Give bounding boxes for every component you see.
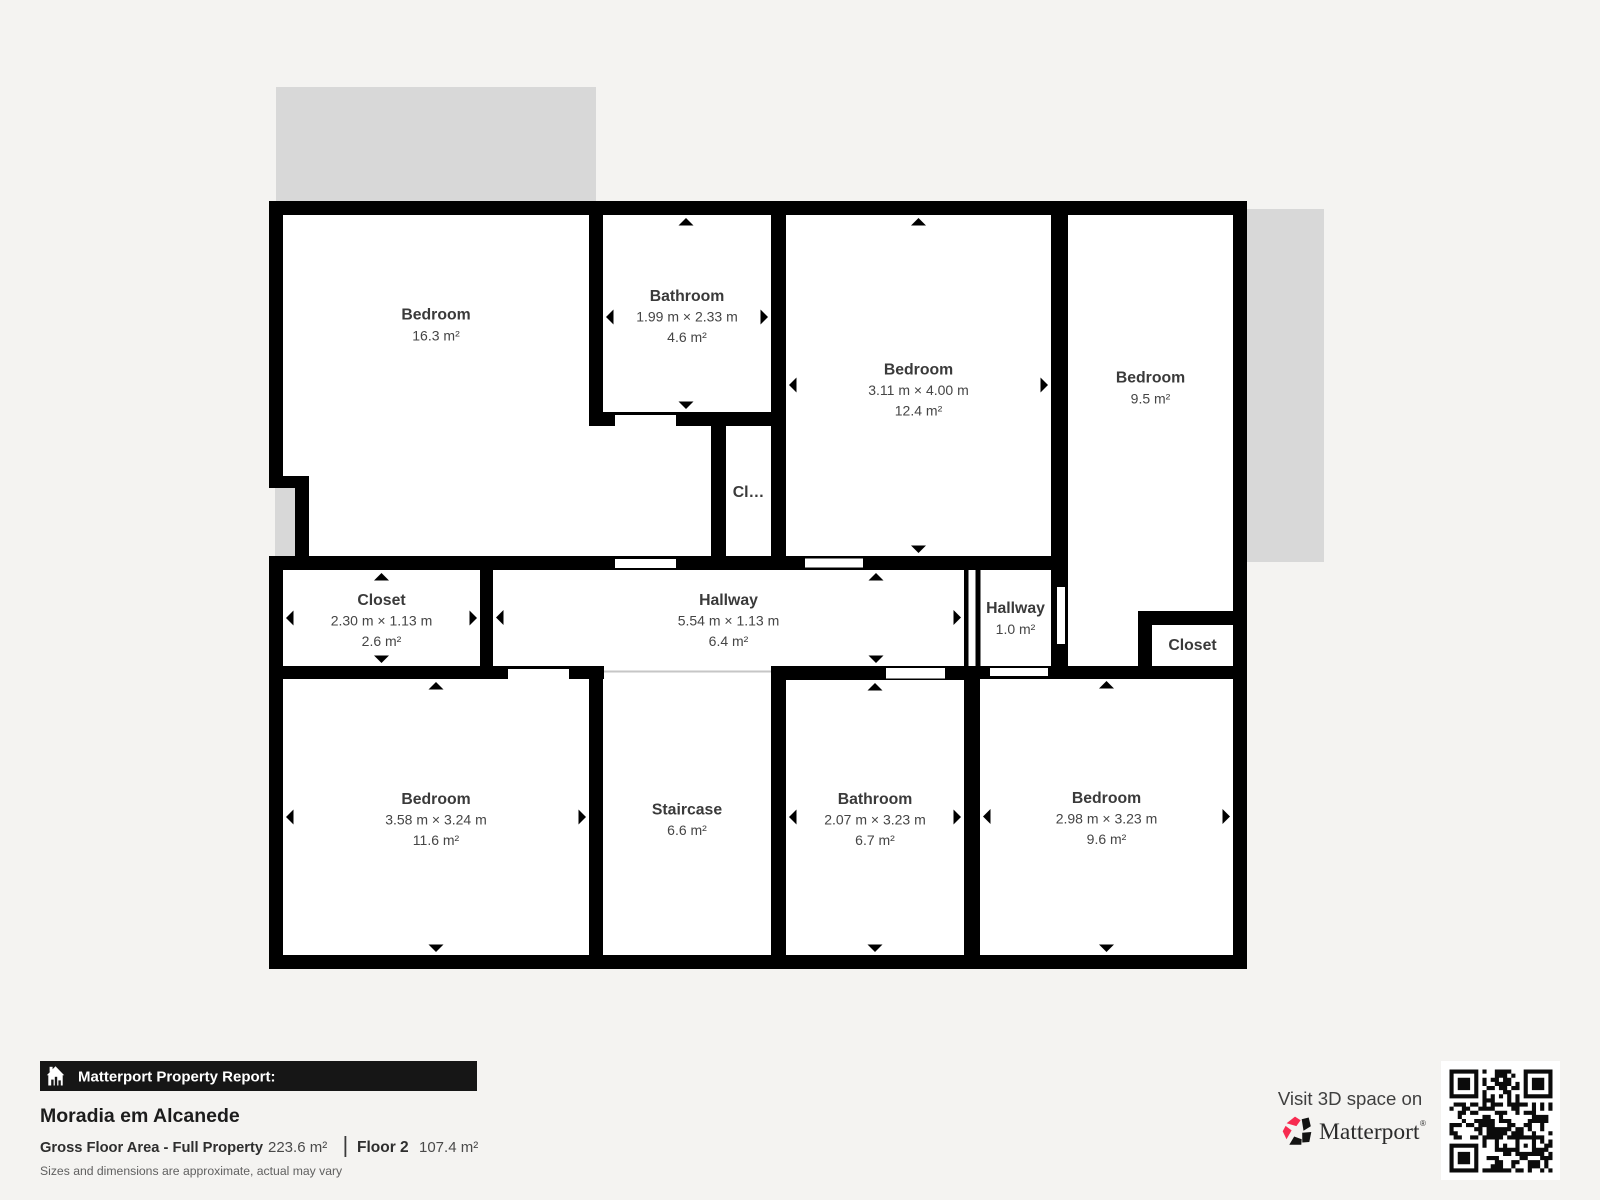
svg-text:Bedroom: Bedroom — [1072, 790, 1141, 807]
svg-text:Gross Floor Area - Full Proper: Gross Floor Area - Full Property — [40, 1140, 264, 1156]
svg-text:1.0 m²: 1.0 m² — [996, 621, 1036, 637]
svg-text:Closet: Closet — [1168, 637, 1217, 654]
svg-text:®: ® — [1420, 1119, 1426, 1128]
svg-text:Closet: Closet — [357, 592, 406, 609]
svg-text:Bedroom: Bedroom — [884, 362, 953, 379]
svg-text:Visit 3D space on: Visit 3D space on — [1278, 1088, 1422, 1109]
svg-text:6.6 m²: 6.6 m² — [667, 822, 707, 838]
svg-text:Hallway: Hallway — [986, 600, 1045, 617]
svg-text:Bathroom: Bathroom — [838, 791, 913, 808]
svg-text:9.5 m²: 9.5 m² — [1131, 391, 1171, 407]
svg-text:Bedroom: Bedroom — [401, 791, 470, 808]
svg-text:Bedroom: Bedroom — [401, 307, 470, 324]
svg-text:Moradia em Alcanede: Moradia em Alcanede — [40, 1105, 240, 1127]
svg-text:12.4 m²: 12.4 m² — [895, 403, 943, 419]
svg-text:Matterport: Matterport — [1319, 1119, 1420, 1145]
svg-text:Bathroom: Bathroom — [650, 288, 725, 305]
svg-text:223.6 m²: 223.6 m² — [268, 1139, 327, 1156]
svg-text:5.54 m × 1.13 m: 5.54 m × 1.13 m — [678, 613, 780, 629]
svg-text:4.6 m²: 4.6 m² — [667, 329, 707, 345]
svg-text:11.6 m²: 11.6 m² — [413, 832, 460, 848]
svg-text:1.99 m × 2.33 m: 1.99 m × 2.33 m — [636, 309, 738, 325]
svg-text:2.30 m × 1.13 m: 2.30 m × 1.13 m — [331, 613, 433, 629]
svg-text:Sizes and dimensions are appro: Sizes and dimensions are approximate, ac… — [40, 1164, 343, 1178]
svg-text:Cl…: Cl… — [733, 484, 765, 501]
svg-text:16.3 m²: 16.3 m² — [412, 328, 460, 344]
svg-text:Matterport Property Report:: Matterport Property Report: — [78, 1069, 276, 1086]
svg-text:Hallway: Hallway — [699, 592, 758, 609]
svg-text:2.6 m²: 2.6 m² — [362, 633, 402, 649]
svg-text:2.07 m × 3.23 m: 2.07 m × 3.23 m — [824, 812, 926, 828]
svg-text:Staircase: Staircase — [652, 802, 722, 819]
svg-text:Bedroom: Bedroom — [1116, 370, 1185, 387]
svg-text:6.4 m²: 6.4 m² — [709, 633, 749, 649]
svg-text:9.6 m²: 9.6 m² — [1087, 831, 1127, 847]
svg-text:107.4 m²: 107.4 m² — [419, 1139, 478, 1156]
svg-text:3.58 m × 3.24 m: 3.58 m × 3.24 m — [385, 812, 487, 828]
svg-text:3.11 m × 4.00 m: 3.11 m × 4.00 m — [868, 382, 969, 398]
svg-text:Floor 2: Floor 2 — [357, 1139, 409, 1156]
svg-text:2.98 m × 3.23 m: 2.98 m × 3.23 m — [1056, 811, 1158, 827]
svg-text:6.7 m²: 6.7 m² — [855, 832, 895, 848]
